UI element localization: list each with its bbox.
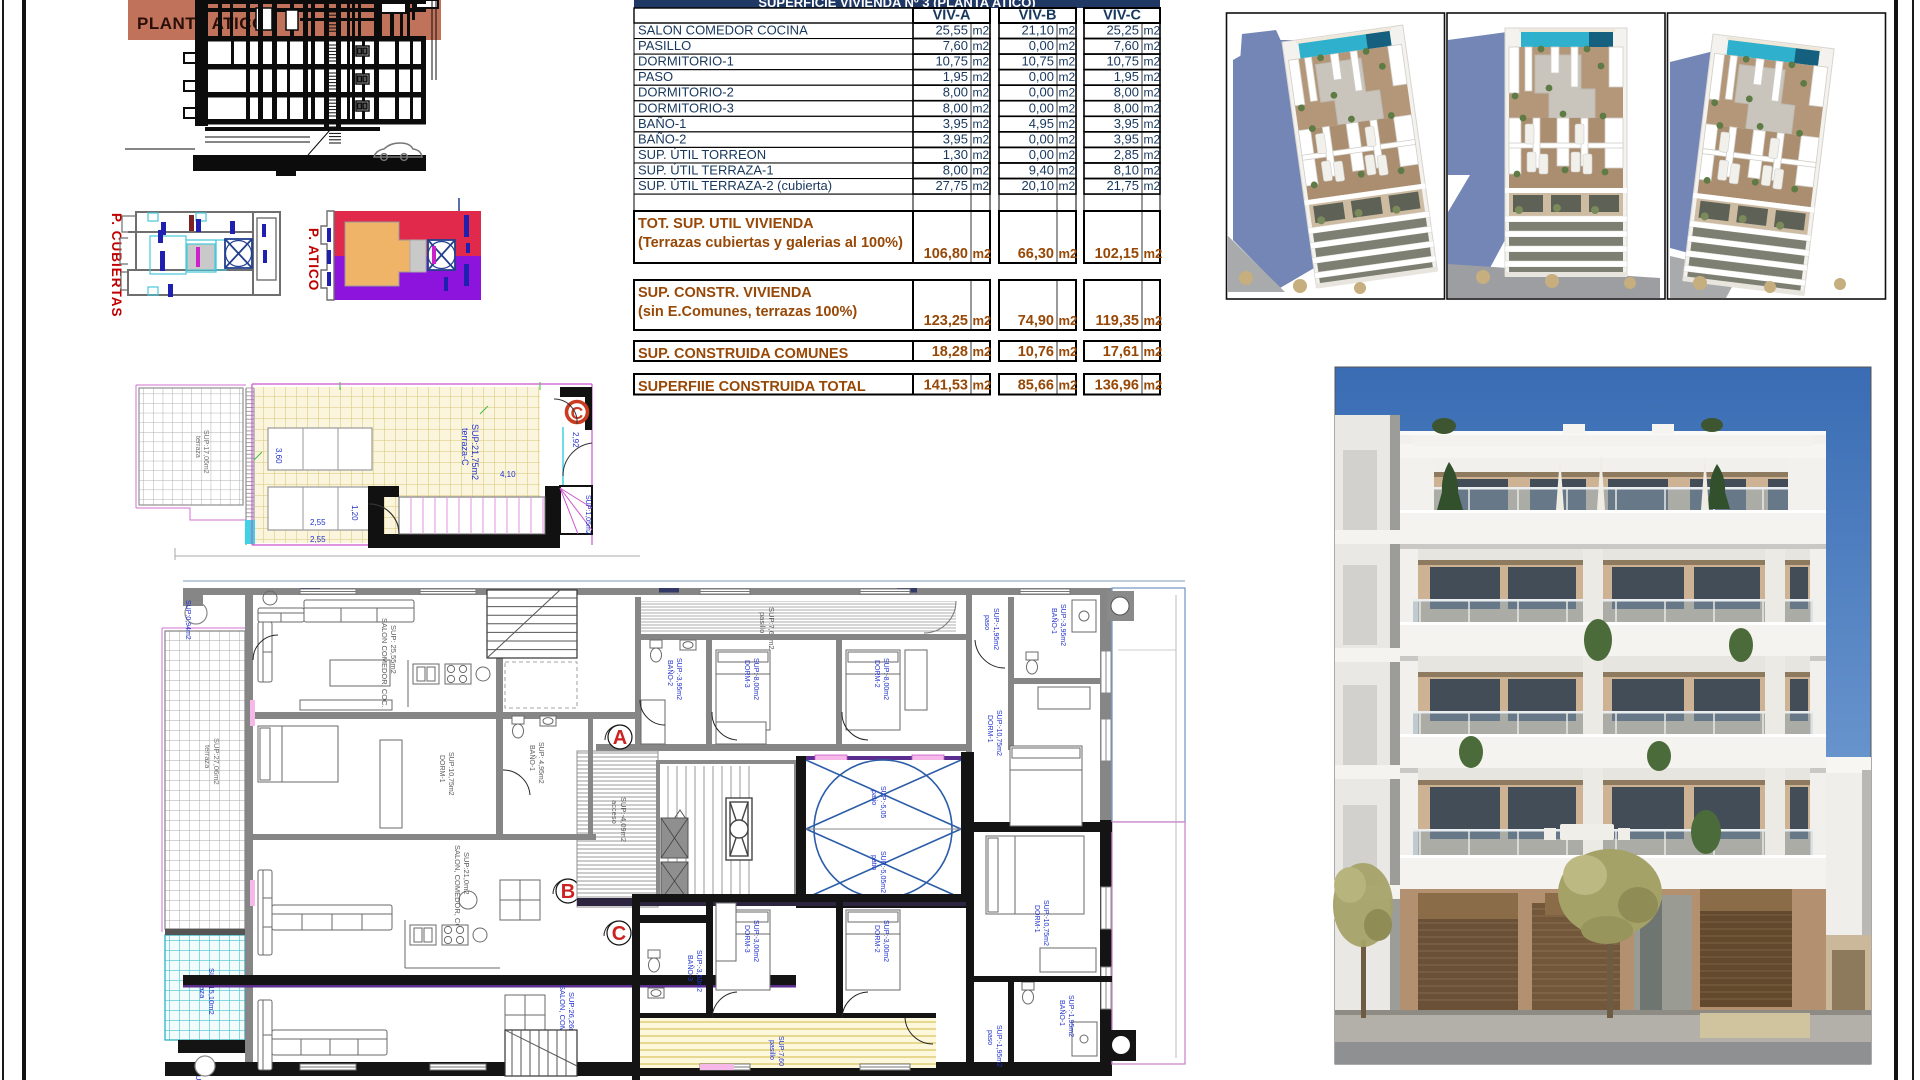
- svg-text:patio: patio: [870, 855, 877, 870]
- svg-text:m2: m2: [973, 39, 990, 53]
- svg-text:SUP:-10,75m2: SUP:-10,75m2: [995, 710, 1002, 756]
- svg-text:10,75: 10,75: [935, 54, 968, 69]
- svg-text:17,61: 17,61: [1103, 344, 1139, 360]
- svg-text:SUP:-5,05: SUP:-5,05: [879, 786, 886, 818]
- svg-text:9,40: 9,40: [1029, 163, 1054, 178]
- svg-text:SUP. CONSTR. VIVIENDA: SUP. CONSTR. VIVIENDA: [638, 285, 812, 301]
- svg-text:m2: m2: [973, 246, 992, 261]
- svg-text:patio: patio: [870, 790, 877, 805]
- svg-text:m2: m2: [1059, 117, 1076, 131]
- svg-text:2,92: 2,92: [571, 432, 580, 448]
- svg-text:m2: m2: [1059, 378, 1078, 393]
- svg-text:A: A: [613, 727, 627, 749]
- svg-text:74,90: 74,90: [1018, 313, 1054, 329]
- svg-text:SUPERFIIE CONSTRUIDA TOTAL: SUPERFIIE CONSTRUIDA TOTAL: [638, 379, 866, 395]
- svg-text:m2: m2: [973, 313, 992, 328]
- svg-text:SUP:-1,95m2: SUP:-1,95m2: [992, 608, 999, 650]
- svg-text:PASO: PASO: [638, 69, 673, 84]
- svg-text:DORM-1: DORM-1: [986, 715, 993, 743]
- svg-text:SUP:10,75m2: SUP:10,75m2: [447, 752, 454, 796]
- svg-text:BAÑO-2: BAÑO-2: [666, 660, 675, 686]
- svg-text:paso: paso: [986, 1030, 993, 1045]
- svg-text:25,25: 25,25: [1106, 23, 1139, 38]
- svg-text:0,00: 0,00: [1029, 38, 1054, 53]
- svg-text:m2: m2: [973, 117, 990, 131]
- svg-text:SUP:0,94m2: SUP:0,94m2: [184, 600, 191, 640]
- svg-text:SUP:-3,00m2: SUP:-3,00m2: [882, 920, 889, 962]
- svg-text:SUP:17,06m2: SUP:17,06m2: [202, 430, 209, 474]
- svg-text:SUP:-3,00m2: SUP:-3,00m2: [752, 920, 759, 962]
- svg-text:119,35: 119,35: [1095, 313, 1139, 329]
- svg-text:66,30: 66,30: [1018, 246, 1054, 262]
- svg-text:0,00: 0,00: [1029, 147, 1054, 162]
- svg-text:10,75: 10,75: [1106, 54, 1139, 69]
- svg-text:DORM-1: DORM-1: [1033, 905, 1040, 933]
- svg-text:SUP: 25,55m2: SUP: 25,55m2: [389, 625, 398, 674]
- svg-text:m2: m2: [1144, 378, 1163, 393]
- svg-text:BAÑO-1: BAÑO-1: [638, 116, 686, 131]
- svg-text:m2: m2: [973, 55, 990, 69]
- svg-text:8,00: 8,00: [943, 163, 968, 178]
- svg-text:m2: m2: [1144, 148, 1161, 162]
- svg-text:m2: m2: [973, 86, 990, 100]
- svg-text:m2: m2: [973, 378, 992, 393]
- svg-text:DORMITORIO-3: DORMITORIO-3: [638, 100, 734, 115]
- svg-text:BAÑO-1: BAÑO-1: [1058, 1000, 1067, 1026]
- svg-text:20,10: 20,10: [1021, 178, 1054, 193]
- svg-text:m2: m2: [1059, 132, 1076, 146]
- svg-text:0,00: 0,00: [1029, 100, 1054, 115]
- svg-text:85,66: 85,66: [1018, 378, 1054, 394]
- svg-text:SUP:-8,00m2: SUP:-8,00m2: [882, 658, 889, 700]
- svg-text:0,00: 0,00: [1029, 85, 1054, 100]
- svg-text:m2: m2: [1059, 101, 1076, 115]
- svg-text:PASILLO: PASILLO: [638, 38, 691, 53]
- svg-text:m2: m2: [1144, 117, 1161, 131]
- svg-text:BAÑO-1: BAÑO-1: [1050, 608, 1059, 634]
- svg-text:SUP:-5,05m2: SUP:-5,05m2: [879, 851, 886, 893]
- svg-text:2,55: 2,55: [310, 518, 326, 527]
- svg-text:1,20: 1,20: [350, 505, 359, 521]
- svg-text:(Terrazas cubiertas y galerias: (Terrazas cubiertas y galerias al 100%): [638, 235, 903, 251]
- svg-text:acceso: acceso: [610, 800, 619, 824]
- svg-text:B: B: [561, 881, 575, 903]
- svg-text:8,00: 8,00: [1114, 85, 1139, 100]
- svg-text:m2: m2: [1144, 132, 1161, 146]
- svg-text:SUP:27,06m2: SUP:27,06m2: [212, 738, 221, 785]
- svg-text:m2: m2: [1144, 39, 1161, 53]
- svg-text:m2: m2: [973, 164, 990, 178]
- svg-text:106,80: 106,80: [924, 246, 968, 262]
- svg-text:1,95: 1,95: [1114, 69, 1139, 84]
- svg-text:21,75: 21,75: [1106, 178, 1139, 193]
- svg-text:terraza: terraza: [203, 745, 212, 769]
- svg-text:8,00: 8,00: [1114, 100, 1139, 115]
- svg-text:2,85: 2,85: [1114, 147, 1139, 162]
- svg-text:1,95: 1,95: [943, 69, 968, 84]
- svg-text:0,00: 0,00: [1029, 131, 1054, 146]
- svg-text:SUP:-3,95m2: SUP:-3,95m2: [1059, 604, 1066, 646]
- svg-text:27,75: 27,75: [935, 178, 968, 193]
- svg-text:DORM-3: DORM-3: [743, 925, 750, 953]
- svg-text:m2: m2: [1144, 86, 1161, 100]
- svg-text:SUP. CONSTRUIDA COMUNES: SUP. CONSTRUIDA COMUNES: [638, 346, 849, 362]
- svg-text:m2: m2: [973, 179, 990, 193]
- svg-text:C: C: [612, 923, 626, 945]
- svg-text:m2: m2: [1144, 164, 1161, 178]
- svg-text:m2: m2: [1059, 86, 1076, 100]
- svg-text:3,95: 3,95: [943, 131, 968, 146]
- svg-text:SALON, COMEDOR, COC.: SALON, COMEDOR, COC.: [453, 845, 462, 937]
- svg-text:BAÑO-3: BAÑO-3: [686, 955, 695, 981]
- svg-text:m2: m2: [1059, 39, 1076, 53]
- svg-text:pasillo: pasillo: [768, 1040, 775, 1060]
- svg-text:VIV-A: VIV-A: [933, 8, 971, 24]
- svg-text:18,28: 18,28: [932, 344, 968, 360]
- svg-text:SUP:1,05m2: SUP:1,05m2: [584, 495, 591, 535]
- svg-text:SUP:7,60m2: SUP:7,60m2: [767, 607, 776, 650]
- svg-text:SUP. ÚTIL TERRAZA-2 (cubierta): SUP. ÚTIL TERRAZA-2 (cubierta): [638, 178, 832, 193]
- svg-text:m2: m2: [1059, 148, 1076, 162]
- svg-text:SUP:-3,50m2: SUP:-3,50m2: [695, 950, 702, 992]
- svg-text:SUP:-3,95m2: SUP:-3,95m2: [675, 658, 682, 700]
- svg-text:10,75: 10,75: [1021, 54, 1054, 69]
- svg-text:25,55: 25,55: [935, 23, 968, 38]
- svg-text:0,00: 0,00: [1029, 69, 1054, 84]
- svg-text:SUP. ÚTIL TERRAZA-1: SUP. ÚTIL TERRAZA-1: [638, 163, 774, 178]
- svg-text:DORMITORIO-2: DORMITORIO-2: [638, 85, 734, 100]
- svg-text:DORM-1: DORM-1: [438, 755, 445, 783]
- svg-text:m2: m2: [973, 24, 990, 38]
- svg-text:2,55: 2,55: [310, 535, 326, 544]
- svg-text:terraza-C: terraza-C: [460, 428, 470, 466]
- svg-text:SUP:-1,95m2: SUP:-1,95m2: [995, 1025, 1002, 1067]
- svg-text:BAÑO-2: BAÑO-2: [638, 131, 686, 146]
- svg-text:m2: m2: [1144, 24, 1161, 38]
- svg-text:VIV-B: VIV-B: [1019, 8, 1057, 24]
- svg-text:SALON COMEDOR COCINA: SALON COMEDOR COCINA: [638, 23, 808, 38]
- svg-text:SUP. ÚTIL TORREON: SUP. ÚTIL TORREON: [638, 147, 766, 162]
- svg-text:3,95: 3,95: [1114, 131, 1139, 146]
- svg-text:8,00: 8,00: [943, 85, 968, 100]
- svg-text:102,15: 102,15: [1095, 246, 1139, 262]
- svg-text:8,00: 8,00: [943, 100, 968, 115]
- svg-text:m2: m2: [1144, 70, 1161, 84]
- svg-text:10,76: 10,76: [1018, 344, 1054, 360]
- svg-text:paso: paso: [983, 615, 990, 630]
- svg-text:123,25: 123,25: [924, 313, 968, 329]
- svg-text:21,10: 21,10: [1021, 23, 1054, 38]
- svg-text:7,60: 7,60: [1114, 38, 1139, 53]
- svg-text:pasillo: pasillo: [758, 612, 767, 633]
- svg-text:m2: m2: [1059, 179, 1076, 193]
- svg-text:SUP:21,0m2: SUP:21,0m2: [462, 852, 471, 895]
- svg-text:136,96: 136,96: [1095, 378, 1139, 394]
- svg-text:m2: m2: [1144, 179, 1161, 193]
- svg-text:1,30: 1,30: [943, 147, 968, 162]
- svg-text:m2: m2: [1144, 344, 1163, 359]
- svg-text:m2: m2: [1059, 164, 1076, 178]
- svg-text:SUP:-1,95m2: SUP:-1,95m2: [1067, 995, 1074, 1037]
- svg-text:m2: m2: [1144, 55, 1161, 69]
- svg-text:m2: m2: [973, 132, 990, 146]
- svg-text:DORMITORIO-1: DORMITORIO-1: [638, 54, 734, 69]
- svg-text:3,60: 3,60: [274, 448, 283, 464]
- svg-text:m2: m2: [1059, 70, 1076, 84]
- svg-text:SUP:-4,09m2: SUP:-4,09m2: [619, 797, 628, 842]
- svg-text:m2: m2: [1059, 313, 1078, 328]
- svg-text:3,95: 3,95: [943, 116, 968, 131]
- svg-text:m2: m2: [973, 148, 990, 162]
- svg-text:m2: m2: [1059, 344, 1078, 359]
- svg-text:141,53: 141,53: [924, 378, 968, 394]
- svg-text:SUP: 4,95m2: SUP: 4,95m2: [537, 742, 544, 784]
- svg-text:BAÑO-1: BAÑO-1: [528, 745, 537, 771]
- svg-text:SUP:21,75m2: SUP:21,75m2: [470, 424, 480, 480]
- svg-text:SUP:7,60: SUP:7,60: [777, 1036, 784, 1066]
- svg-text:m2: m2: [1144, 101, 1161, 115]
- svg-text:m2: m2: [1059, 24, 1076, 38]
- svg-text:(sin E.Comunes, terrazas 100%): (sin E.Comunes, terrazas 100%): [638, 304, 857, 320]
- svg-text:4,95: 4,95: [1029, 116, 1054, 131]
- svg-text:TOT. SUP. UTIL VIVIENDA: TOT. SUP. UTIL VIVIENDA: [638, 216, 814, 232]
- svg-text:3,95: 3,95: [1114, 116, 1139, 131]
- svg-text:DORM-2: DORM-2: [873, 660, 880, 688]
- svg-text:m2: m2: [1144, 246, 1163, 261]
- svg-text:DORM-3: DORM-3: [743, 660, 750, 688]
- svg-text:m2: m2: [1059, 55, 1076, 69]
- svg-text:VIV-C: VIV-C: [1103, 8, 1141, 24]
- svg-text:m2: m2: [1144, 313, 1163, 328]
- svg-text:SUP:-10,75m2: SUP:-10,75m2: [1042, 900, 1049, 946]
- svg-text:m2: m2: [973, 344, 992, 359]
- svg-text:P. ATICO: P. ATICO: [306, 228, 321, 291]
- svg-text:SALON COMEDOR, COC.: SALON COMEDOR, COC.: [380, 618, 389, 708]
- svg-text:4,10: 4,10: [500, 470, 516, 479]
- svg-text:SUP:-8,00m2: SUP:-8,00m2: [752, 658, 759, 700]
- svg-text:7,60: 7,60: [943, 38, 968, 53]
- svg-text:DORM-2: DORM-2: [873, 925, 880, 953]
- svg-text:terraza: terraza: [194, 436, 201, 458]
- svg-text:m2: m2: [1059, 246, 1078, 261]
- svg-text:m2: m2: [973, 101, 990, 115]
- svg-text:8,10: 8,10: [1114, 163, 1139, 178]
- svg-text:m2: m2: [973, 70, 990, 84]
